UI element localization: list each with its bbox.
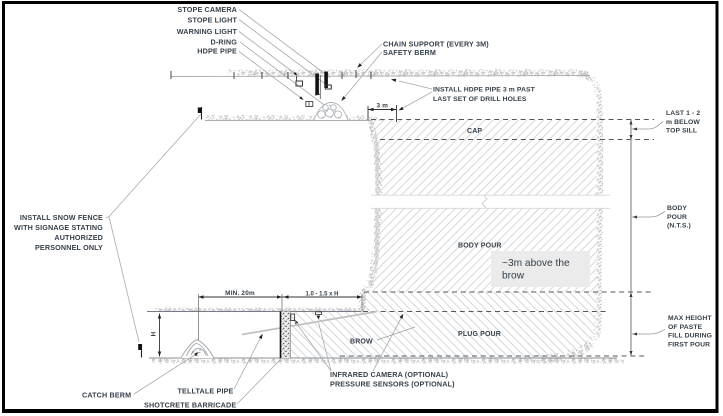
- svg-text:FILL DURING: FILL DURING: [668, 333, 712, 340]
- svg-text:brow: brow: [502, 271, 525, 282]
- svg-text:AUTHORIZED: AUTHORIZED: [54, 233, 103, 242]
- svg-text:WARNING LIGHT: WARNING LIGHT: [177, 27, 238, 36]
- svg-text:BROW: BROW: [350, 339, 373, 346]
- svg-text:SHOTCRETE BARRICADE: SHOTCRETE BARRICADE: [144, 401, 236, 410]
- svg-text:SAFETY BERM: SAFETY BERM: [383, 48, 436, 57]
- svg-text:MIN. 20m: MIN. 20m: [225, 290, 255, 297]
- svg-text:BODY: BODY: [667, 205, 687, 212]
- svg-text:m BELOW: m BELOW: [666, 119, 700, 126]
- svg-text:FIRST POUR: FIRST POUR: [668, 341, 710, 348]
- svg-text:WITH SIGNAGE STATING: WITH SIGNAGE STATING: [14, 223, 103, 232]
- svg-text:TOP SILL: TOP SILL: [666, 128, 697, 135]
- svg-text:~3m above the: ~3m above the: [502, 258, 570, 269]
- svg-text:HDPE PIPE: HDPE PIPE: [197, 47, 237, 56]
- svg-text:H: H: [151, 331, 158, 336]
- svg-text:3 m: 3 m: [377, 103, 389, 110]
- svg-text:LAST SET OF DRILL HOLES: LAST SET OF DRILL HOLES: [433, 96, 527, 103]
- svg-text:CATCH BERM: CATCH BERM: [82, 391, 131, 400]
- svg-text:CAP: CAP: [467, 128, 482, 135]
- svg-text:D-RING: D-RING: [211, 37, 238, 46]
- svg-text:PERSONNEL ONLY: PERSONNEL ONLY: [35, 243, 103, 252]
- svg-text:MAX HEIGHT: MAX HEIGHT: [668, 315, 712, 322]
- svg-text:OF PASTE: OF PASTE: [668, 324, 703, 331]
- svg-text:PRESSURE SENSORS (OPTIONAL): PRESSURE SENSORS (OPTIONAL): [330, 380, 455, 389]
- svg-text:LAST 1 - 2: LAST 1 - 2: [666, 110, 700, 117]
- svg-text:INSTALL SNOW FENCE: INSTALL SNOW FENCE: [20, 213, 103, 222]
- svg-text:PLUG POUR: PLUG POUR: [458, 331, 501, 338]
- svg-text:INFRARED CAMERA (OPTIONAL): INFRARED CAMERA (OPTIONAL): [330, 370, 449, 379]
- svg-text:STOPE LIGHT: STOPE LIGHT: [188, 15, 238, 24]
- svg-text:BODY POUR: BODY POUR: [458, 243, 502, 250]
- svg-text:1.0 - 1.5 x H: 1.0 - 1.5 x H: [305, 291, 338, 297]
- svg-text:POUR: POUR: [667, 214, 687, 221]
- svg-text:TELLTALE PIPE: TELLTALE PIPE: [178, 387, 234, 396]
- svg-text:STOPE CAMERA: STOPE CAMERA: [177, 5, 237, 14]
- svg-text:(N.T.S.): (N.T.S.): [667, 223, 691, 230]
- svg-text:INSTALL HDPE PIPE 3 m PAST: INSTALL HDPE PIPE 3 m PAST: [433, 87, 536, 94]
